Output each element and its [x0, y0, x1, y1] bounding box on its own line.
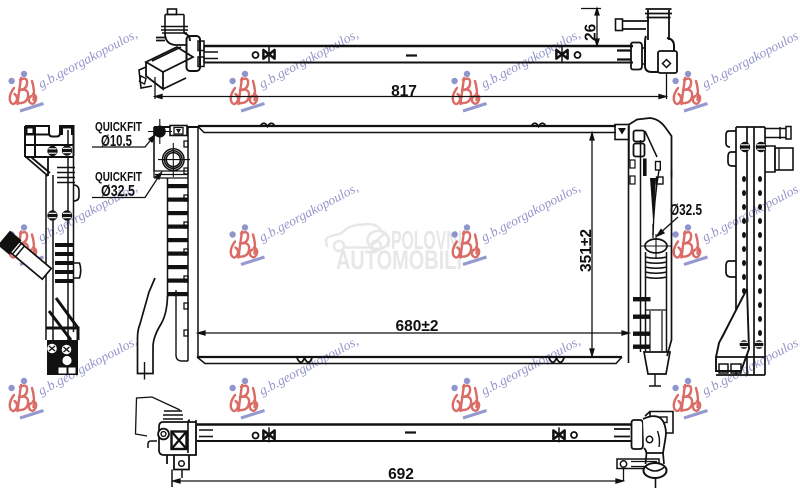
svg-text:692: 692 — [388, 466, 414, 483]
svg-text:AUTOMOBILI: AUTOMOBILI — [336, 245, 462, 275]
svg-text:351±2: 351±2 — [578, 229, 595, 272]
svg-text:QUICKFIT: QUICKFIT — [95, 170, 142, 184]
svg-text:817: 817 — [391, 83, 417, 100]
svg-text:QUICKFIT: QUICKFIT — [95, 120, 142, 134]
svg-text:680±2: 680±2 — [396, 318, 439, 335]
svg-text:Ø32.5: Ø32.5 — [670, 202, 702, 219]
svg-text:26: 26 — [583, 23, 600, 41]
